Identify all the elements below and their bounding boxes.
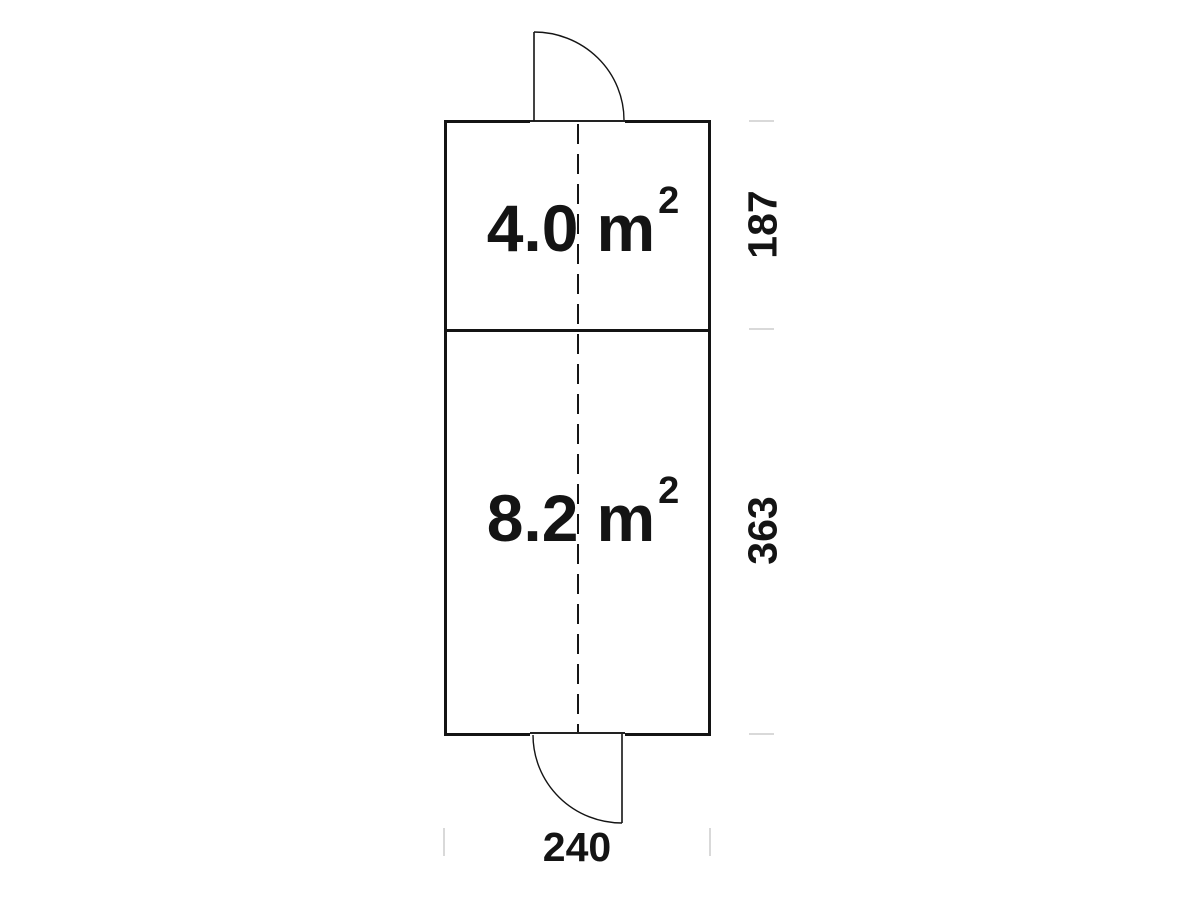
floor-plan: 4.0m2 8.2m2 187 363 240 (0, 0, 1200, 900)
area-exponent: 2 (658, 182, 679, 220)
top-door-swing-arc (534, 32, 624, 120)
area-unit: m (596, 195, 655, 261)
dim-tick-right-bottom (749, 733, 774, 735)
dim-tick-bottom-left (443, 828, 445, 856)
dimension-label-right-lower: 363 (738, 485, 788, 575)
dimension-label-bottom: 240 (507, 822, 647, 872)
bottom-door-swing-arc (533, 735, 622, 823)
dim-tick-bottom-right (709, 828, 711, 856)
dimension-label-right-upper: 187 (738, 179, 788, 269)
dim-tick-right-top (749, 120, 774, 122)
room-area-label-bottom: 8.2m2 (423, 470, 743, 566)
area-value: 4.0 (487, 195, 579, 261)
area-value: 8.2 (487, 485, 579, 551)
dim-tick-right-middle (749, 328, 774, 330)
room-area-label-top: 4.0m2 (423, 180, 743, 276)
area-unit: m (596, 485, 655, 551)
area-exponent: 2 (658, 472, 679, 510)
door-layer (0, 0, 1200, 900)
